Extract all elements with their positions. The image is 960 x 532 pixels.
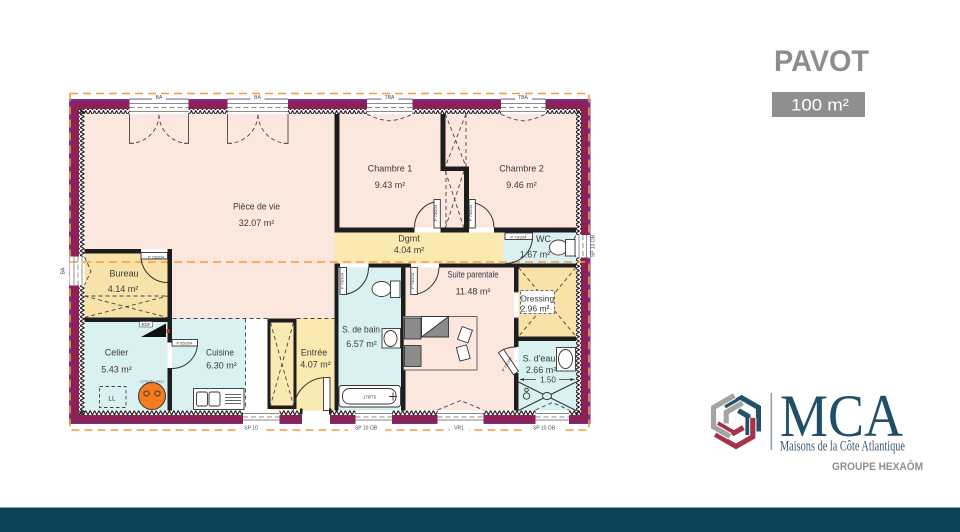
svg-text:SP 10 OB: SP 10 OB bbox=[533, 426, 556, 432]
svg-text:Suite parentale: Suite parentale bbox=[448, 270, 499, 280]
svg-text:5.43 m²: 5.43 m² bbox=[101, 365, 132, 375]
svg-text:11.48 m²: 11.48 m² bbox=[456, 287, 491, 297]
svg-text:PAVOT: PAVOT bbox=[774, 45, 869, 78]
svg-text:Bureau: Bureau bbox=[109, 269, 138, 279]
svg-text:S. de bain: S. de bain bbox=[342, 325, 380, 335]
svg-text:EDF: EDF bbox=[142, 322, 151, 327]
svg-text:P 73/204: P 73/204 bbox=[410, 272, 415, 289]
svg-text:SP 10 OB: SP 10 OB bbox=[591, 234, 597, 257]
svg-text:P 73/204: P 73/204 bbox=[433, 204, 438, 221]
svg-text:1.50: 1.50 bbox=[540, 376, 556, 385]
svg-text:100 m²: 100 m² bbox=[791, 96, 849, 115]
svg-text:2.96 m²: 2.96 m² bbox=[521, 304, 550, 314]
svg-text:Chambre 2: Chambre 2 bbox=[499, 164, 544, 174]
svg-text:SP 10 OB: SP 10 OB bbox=[355, 426, 378, 432]
svg-text:P 73/204: P 73/204 bbox=[339, 272, 344, 289]
svg-text:P 73/204: P 73/204 bbox=[148, 255, 165, 260]
svg-text:Dgmt: Dgmt bbox=[398, 234, 420, 244]
svg-text:P 73/204: P 73/204 bbox=[468, 204, 473, 221]
svg-text:Celier: Celier bbox=[105, 348, 129, 358]
svg-text:SP 10: SP 10 bbox=[244, 426, 258, 432]
svg-text:1.67 m²: 1.67 m² bbox=[520, 250, 551, 260]
svg-text:BA: BA bbox=[156, 95, 163, 101]
svg-text:TBA: TBA bbox=[518, 95, 528, 101]
svg-text:TBA: TBA bbox=[385, 95, 395, 101]
svg-text:Entrée: Entrée bbox=[301, 348, 328, 358]
svg-text:BA: BA bbox=[61, 267, 67, 274]
svg-text:Maisons de la Côte Atlantique: Maisons de la Côte Atlantique bbox=[780, 439, 905, 455]
svg-text:S. d'eau: S. d'eau bbox=[523, 354, 556, 364]
svg-text:Dressing: Dressing bbox=[521, 294, 555, 304]
svg-text:9.43 m²: 9.43 m² bbox=[375, 180, 406, 190]
svg-text:2.66 m²: 2.66 m² bbox=[526, 365, 557, 375]
svg-text:BA: BA bbox=[254, 95, 261, 101]
svg-text:4.07 m²: 4.07 m² bbox=[300, 360, 331, 370]
svg-text:P 73/204: P 73/204 bbox=[511, 235, 528, 240]
svg-text:32.07 m²: 32.07 m² bbox=[239, 218, 275, 228]
svg-text:4.04 m²: 4.04 m² bbox=[394, 245, 425, 255]
svg-text:9.46 m²: 9.46 m² bbox=[506, 180, 537, 190]
svg-text:P 85/204: P 85/204 bbox=[177, 341, 194, 346]
svg-text:Pièce de vie: Pièce de vie bbox=[233, 202, 280, 212]
svg-text:(chauffe-eau): (chauffe-eau) bbox=[140, 379, 164, 384]
svg-text:170/75: 170/75 bbox=[363, 395, 376, 400]
svg-text:LL: LL bbox=[108, 396, 116, 403]
svg-text:4.14 m²: 4.14 m² bbox=[108, 284, 139, 294]
svg-text:WC: WC bbox=[536, 234, 551, 244]
svg-text:Cuisine: Cuisine bbox=[206, 348, 234, 358]
svg-text:VR1: VR1 bbox=[454, 426, 464, 432]
svg-text:6.30 m²: 6.30 m² bbox=[206, 361, 237, 371]
svg-text:Chambre 1: Chambre 1 bbox=[368, 164, 413, 174]
svg-text:GROUPE HEXAÔM: GROUPE HEXAÔM bbox=[832, 460, 923, 473]
svg-text:6.57 m²: 6.57 m² bbox=[346, 339, 377, 349]
